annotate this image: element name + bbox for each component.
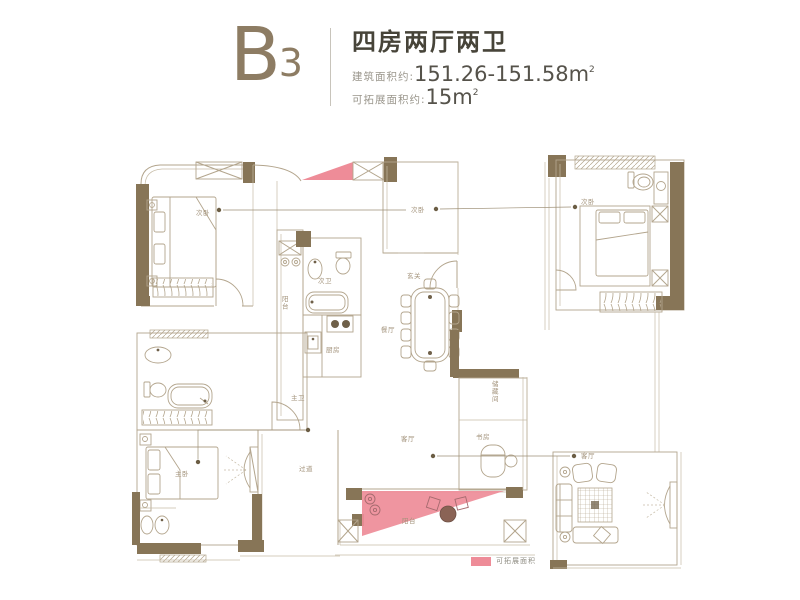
built-area-label: 建筑面积约: — [352, 72, 414, 85]
room-bath-master — [137, 330, 307, 430]
room-label-study: 书房 — [476, 432, 490, 441]
vanity-icon — [654, 172, 668, 204]
room-label-bedroom-master: 主卧 — [175, 469, 189, 478]
stove-icon — [327, 316, 353, 332]
balcony-bottom — [335, 491, 535, 555]
door-arc — [216, 279, 243, 306]
room-label-bath-master: 主卫 — [291, 393, 305, 402]
corridor-structure — [545, 155, 566, 330]
plan-title: 四房两厅两卫 — [352, 22, 595, 57]
room-label-bedroom-top-center: 次卧 — [411, 205, 425, 214]
floorplan-page: 次卧次卧次卧阳台次卫厨房玄关餐厅主卫主卧过道客厅客厅书房储藏间阳台 B3 四房两… — [0, 0, 800, 600]
entry-door-arc — [430, 261, 457, 288]
plant-icon — [281, 258, 300, 266]
door-arc — [556, 270, 576, 290]
room-label-bedroom-top-left: 次卧 — [196, 208, 210, 217]
room-label-balcony-left: 阳台 — [282, 294, 289, 311]
plan-code-letter: B — [230, 12, 279, 98]
toilet-icon — [144, 382, 166, 397]
header-divider — [330, 28, 331, 106]
legend-label: 可拓展面积 — [496, 556, 536, 566]
expand-area-value: 15m2 — [426, 86, 479, 108]
plan-header: B3 四房两厅两卫 建筑面积约: 151.26-151.58m2 可拓展面积约:… — [230, 18, 650, 113]
room-bedroom-top-left — [136, 162, 277, 306]
wardrobe-icon — [600, 292, 662, 312]
room-living-right — [550, 312, 681, 569]
top-center-structure — [253, 157, 397, 182]
wc-nook — [132, 492, 176, 545]
room-label-storage: 储藏间 — [492, 379, 499, 403]
sink-icon — [308, 259, 322, 279]
legend-swatch — [471, 557, 491, 566]
cabinet-icon — [652, 206, 668, 286]
desk-chair-icon — [481, 445, 517, 477]
room-label-dining: 餐厅 — [381, 325, 395, 334]
expand-area-row: 可拓展面积约: 15m2 — [352, 86, 595, 108]
rug-icon — [578, 488, 612, 522]
tv-icon — [642, 482, 677, 528]
bed-icon — [580, 206, 650, 286]
door-arc — [272, 402, 300, 430]
built-area-value: 151.26-151.58m2 — [414, 63, 595, 85]
wardrobe-icon — [142, 410, 212, 425]
expandable-area-top — [302, 162, 353, 180]
toilet-icon — [628, 172, 653, 190]
room-storage-study — [450, 330, 527, 490]
window-icon — [353, 162, 384, 180]
room-bedroom-top-right — [556, 156, 684, 312]
legend: 可拓展面积 — [471, 556, 536, 566]
sink-icon — [145, 347, 171, 363]
wardrobe-icon — [153, 278, 213, 297]
expand-area-label: 可拓展面积约: — [352, 95, 426, 108]
room-label-balcony-bottom: 阳台 — [402, 516, 416, 525]
room-balcony-left — [277, 230, 303, 420]
room-label-kitchen: 厨房 — [326, 345, 340, 354]
room-label-living: 客厅 — [401, 434, 415, 443]
built-area-row: 建筑面积约: 151.26-151.58m2 — [352, 63, 595, 85]
bathtub-icon — [168, 384, 212, 408]
room-hallway — [222, 430, 340, 556]
tv-icon — [222, 447, 258, 492]
room-label-bedroom-top-right: 次卧 — [581, 197, 595, 206]
plan-code-number: 3 — [279, 41, 303, 85]
room-label-foyer: 玄关 — [407, 271, 421, 280]
bathtub-icon — [306, 292, 348, 313]
room-label-hallway: 过道 — [299, 464, 313, 473]
toilet-icon — [336, 252, 351, 274]
room-label-living-right: 客厅 — [581, 451, 595, 460]
room-label-bath-secondary: 次卫 — [318, 276, 332, 285]
room-bath-secondary — [296, 231, 361, 315]
plan-code: B3 — [230, 18, 303, 92]
